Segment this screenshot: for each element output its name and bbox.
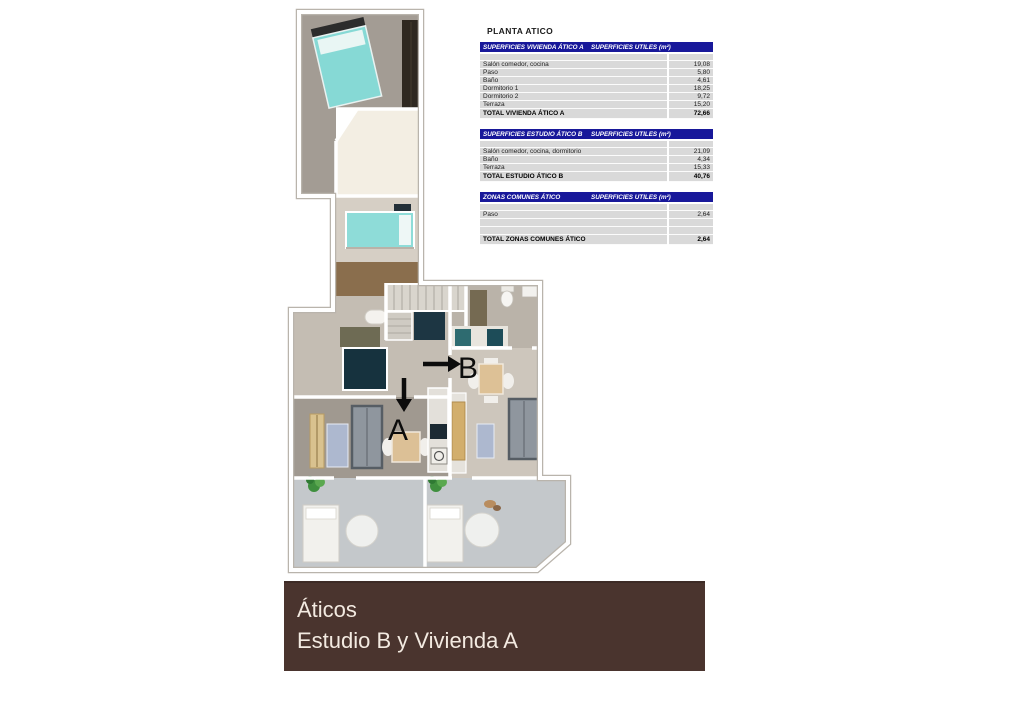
page-title: PLANTA ATICO <box>487 26 713 36</box>
row-label: Terraza <box>480 101 668 109</box>
area-table-0: SUPERFICIES VIVIENDA ÁTICO A SUPERFICIES… <box>480 42 713 119</box>
row-label: TOTAL VIVIENDA ÁTICO A <box>480 109 668 119</box>
table-header-row: ZONAS COMUNES ÁTICO SUPERFICIES UTILES (… <box>480 192 713 203</box>
unit-label-a: A <box>388 414 408 447</box>
table-row: Paso 5,80 <box>480 69 713 77</box>
table-row: Terraza 15,20 <box>480 101 713 109</box>
table-header-left: SUPERFICIES ESTUDIO ÁTICO B <box>480 129 588 140</box>
row-label: Dormitorio 1 <box>480 85 668 93</box>
row-value <box>668 227 713 235</box>
table-header-right: SUPERFICIES UTILES (m²) <box>588 129 713 140</box>
row-label: Baño <box>480 77 668 85</box>
kitchen-b-cabinet <box>452 402 465 460</box>
table-total-row: TOTAL VIVIENDA ÁTICO A 72,66 <box>480 109 713 119</box>
rug-b <box>477 424 494 458</box>
row-label: Paso <box>480 211 668 219</box>
row-label: TOTAL ZONAS COMUNES ÁTICO <box>480 235 668 245</box>
table-total-row: TOTAL ESTUDIO ÁTICO B 40,76 <box>480 172 713 182</box>
table-row: Salón comedor, cocina, dormitorio 21,09 <box>480 148 713 156</box>
row-value: 15,33 <box>668 164 713 172</box>
tables-mount: SUPERFICIES VIVIENDA ÁTICO A SUPERFICIES… <box>480 42 713 245</box>
row-label: Terraza <box>480 164 668 172</box>
table-row: Baño 4,34 <box>480 156 713 164</box>
row-value: 15,20 <box>668 101 713 109</box>
row-value: 19,08 <box>668 61 713 69</box>
table-row <box>480 53 713 61</box>
row-value <box>668 219 713 227</box>
row-value: 4,61 <box>668 77 713 85</box>
shower-a <box>343 348 387 390</box>
area-table-2: ZONAS COMUNES ÁTICO SUPERFICIES UTILES (… <box>480 192 713 245</box>
table-row <box>480 203 713 211</box>
table-header-right: SUPERFICIES UTILES (m²) <box>588 192 713 203</box>
row-label <box>480 227 668 235</box>
row-value: 72,66 <box>668 109 713 119</box>
row-label: Salón comedor, cocina <box>480 61 668 69</box>
row-value: 21,09 <box>668 148 713 156</box>
dining-table-b <box>479 364 503 394</box>
banner-line-2: Estudio B y Vivienda A <box>297 625 705 656</box>
row-value: 9,72 <box>668 93 713 101</box>
row-label <box>480 219 668 227</box>
row-value: 2,64 <box>668 211 713 219</box>
surface-tables-panel: PLANTA ATICO SUPERFICIES VIVIENDA ÁTICO … <box>480 26 713 255</box>
row-label: Dormitorio 2 <box>480 93 668 101</box>
table-total-row: TOTAL ZONAS COMUNES ÁTICO 2,64 <box>480 235 713 245</box>
stair-landing <box>414 312 445 340</box>
table-header-left: SUPERFICIES VIVIENDA ÁTICO A <box>480 42 588 53</box>
row-label: Salón comedor, cocina, dormitorio <box>480 148 668 156</box>
round-table-b <box>465 513 499 547</box>
row-label: TOTAL ESTUDIO ÁTICO B <box>480 172 668 182</box>
row-value: 2,64 <box>668 235 713 245</box>
area-table-1: SUPERFICIES ESTUDIO ÁTICO B SUPERFICIES … <box>480 129 713 182</box>
table-header-row: SUPERFICIES ESTUDIO ÁTICO B SUPERFICIES … <box>480 129 713 140</box>
table-row <box>480 219 713 227</box>
row-label: Paso <box>480 69 668 77</box>
table-header-right: SUPERFICIES UTILES (m²) <box>588 42 713 53</box>
table-row: Baño 4,61 <box>480 77 713 85</box>
row-value: 4,34 <box>668 156 713 164</box>
row-value <box>668 203 713 211</box>
table-header-row: SUPERFICIES VIVIENDA ÁTICO A SUPERFICIES… <box>480 42 713 53</box>
table-row: Dormitorio 1 18,25 <box>480 85 713 93</box>
table-row: Terraza 15,33 <box>480 164 713 172</box>
table-row: Salón comedor, cocina 19,08 <box>480 61 713 69</box>
row-value: 5,80 <box>668 69 713 77</box>
row-label: Baño <box>480 156 668 164</box>
banner-line-1: Áticos <box>297 594 705 625</box>
unit-label-b: B <box>458 352 478 385</box>
table-row <box>480 227 713 235</box>
table-row: Paso 2,64 <box>480 211 713 219</box>
row-value <box>668 140 713 148</box>
table-row <box>480 140 713 148</box>
row-value: 40,76 <box>668 172 713 182</box>
plan-sheet: B A PLANTA ATICO SUPERFICIES VIVIENDA ÁT… <box>0 0 1024 728</box>
table-row: Dormitorio 2 9,72 <box>480 93 713 101</box>
round-table-a <box>346 515 378 547</box>
title-banner: Áticos Estudio B y Vivienda A <box>284 581 705 671</box>
row-value: 18,25 <box>668 85 713 93</box>
table-header-left: ZONAS COMUNES ÁTICO <box>480 192 588 203</box>
row-label <box>480 53 668 61</box>
rug-a <box>327 424 348 467</box>
row-label <box>480 203 668 211</box>
row-label <box>480 140 668 148</box>
row-value <box>668 53 713 61</box>
